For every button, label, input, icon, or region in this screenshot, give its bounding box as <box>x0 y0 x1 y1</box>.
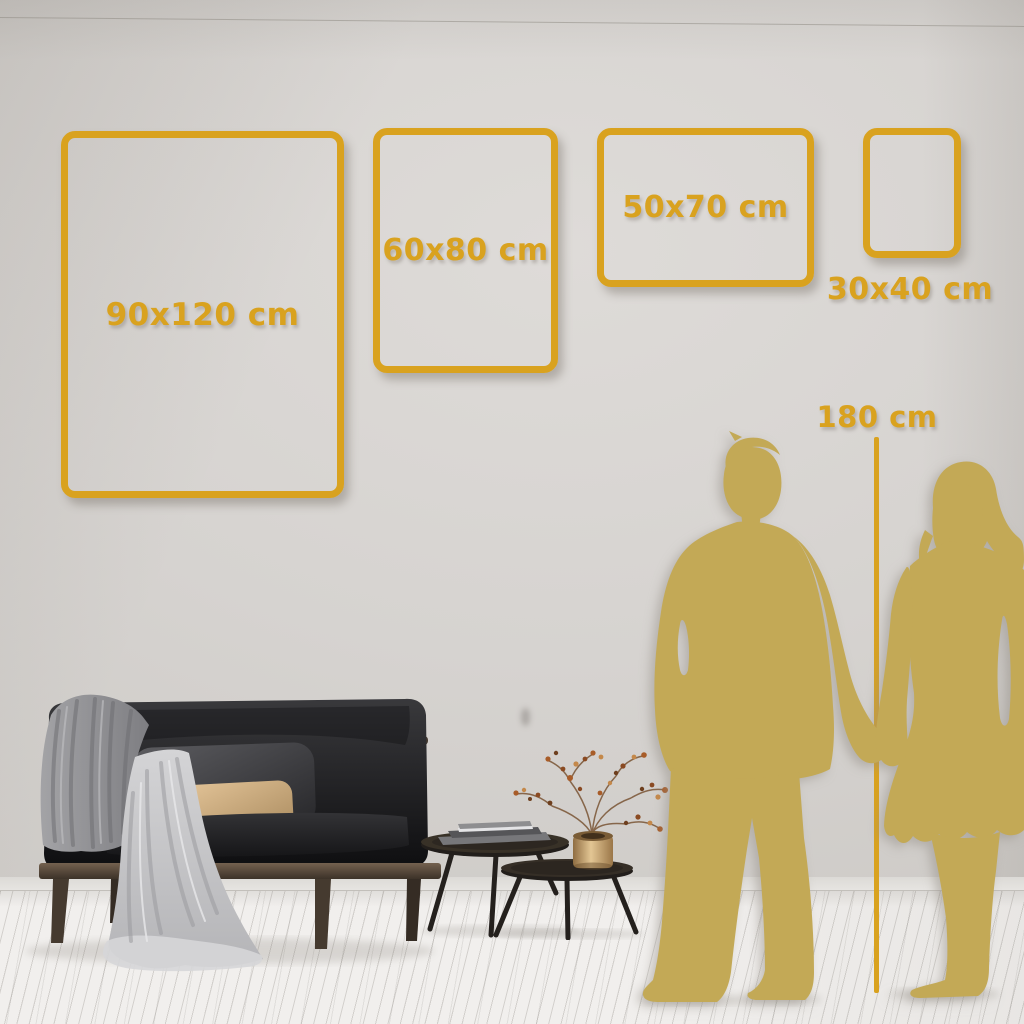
size-label-60x80: 60x80 cm <box>382 233 548 268</box>
sofa-leg <box>51 879 69 943</box>
frame-30x40 <box>863 128 961 258</box>
sofa-leg <box>315 879 331 949</box>
man-coat <box>654 522 834 782</box>
wood-rail <box>39 863 441 879</box>
man-head <box>723 447 781 520</box>
size-label-30x40: 30x40 cm <box>815 272 1005 307</box>
woman-arm <box>876 567 913 766</box>
gold-vase <box>573 831 613 870</box>
man-silhouette <box>643 431 887 1002</box>
woman-silhouette <box>876 462 1024 998</box>
wall-smudge <box>521 708 530 726</box>
size-label-90x120: 90x120 cm <box>106 297 300 333</box>
size-guide-scene: 90x120 cm 60x80 cm 50x70 cm 30x40 cm 180… <box>0 0 1024 1024</box>
frame-60x80: 60x80 cm <box>373 128 558 373</box>
couple-silhouette-icon <box>640 428 1024 1008</box>
size-label-50x70: 50x70 cm <box>622 190 788 225</box>
man-legs <box>643 768 814 1002</box>
sofa-illustration <box>15 693 445 978</box>
sofa-leg <box>406 879 421 941</box>
frame-90x120: 90x120 cm <box>61 131 344 498</box>
woman-legs <box>910 832 1000 998</box>
woman-head <box>935 483 983 541</box>
frame-50x70: 50x70 cm <box>597 128 814 287</box>
